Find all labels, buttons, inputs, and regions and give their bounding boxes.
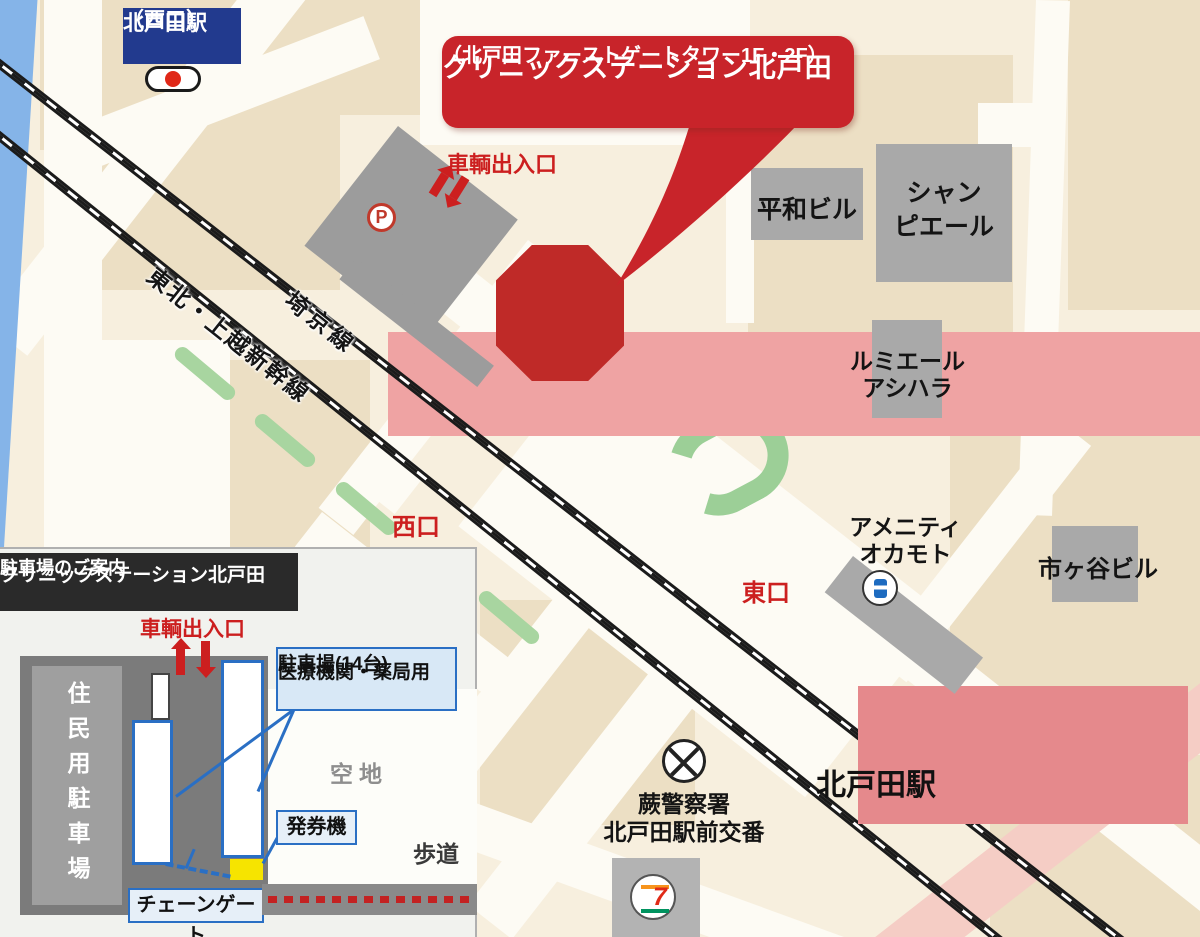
- amenity-label-2: オカモト: [852, 535, 959, 569]
- seven-glyph: 7: [653, 883, 667, 912]
- station-name-label: 北戸田駅: [816, 760, 936, 804]
- area-map: 埼京線 東北・上越新幹線 P 車輌出入口 平和ビル シャン ピエール ルミエール…: [0, 0, 1200, 937]
- ticket-machine-callout: 発券機: [276, 810, 357, 845]
- ichigaya-label: 市ヶ谷ビル: [1038, 549, 1153, 584]
- convenience-store-icon: [862, 570, 898, 606]
- ticket-machine: [230, 859, 263, 880]
- arrow-up-icon: [176, 649, 185, 675]
- city-block: [1068, 0, 1200, 310]
- parking-inset-map: クリニックステーション北戸田 駐車場のご案内 住民用駐車場 車輌出入口 医療機関…: [0, 547, 477, 937]
- sidewalk-strip: [262, 884, 477, 915]
- red-light: [165, 71, 181, 87]
- arrow-down-icon: [201, 641, 210, 667]
- saikyo-line-label: 埼京線: [279, 282, 366, 361]
- parking-icon: P: [367, 203, 396, 232]
- west-exit-label: 西口: [392, 507, 440, 542]
- police-label-2: 北戸田駅前交番: [596, 813, 772, 847]
- parking-column-middle: [132, 720, 173, 865]
- champierre-label-1: シャン: [876, 173, 1012, 209]
- police-box-icon: [662, 739, 706, 783]
- station-west-exit-sign: 北戸田駅 （西口）: [123, 8, 241, 64]
- balloon-tail: [558, 118, 798, 293]
- chain-gate-callout: チェーンゲート: [128, 888, 264, 923]
- traffic-light-icon: [145, 66, 201, 92]
- parking-column-small: [151, 673, 170, 720]
- lumiere-label-2: アシハラ: [854, 369, 961, 403]
- resident-parking-building: 住民用駐車場: [32, 666, 122, 905]
- green-stripe: [641, 909, 669, 913]
- clinic-subtitle: （北戸田ファーストゲートタワー1F・2F）: [442, 39, 828, 68]
- red-dotted-line: [268, 896, 473, 903]
- inset-header-line-2: 駐車場のご案内: [0, 554, 126, 580]
- sign-line-2: （西口）: [123, 8, 207, 34]
- seven-eleven-icon: 7: [630, 874, 676, 920]
- medical-parking-callout: 医療機関・薬局用 駐車場(14台): [276, 647, 457, 711]
- vacant-lot-label: 空地: [330, 755, 388, 789]
- east-exit-label: 東口: [742, 573, 790, 608]
- medical-parking-line-2: 駐車場(14台): [278, 649, 388, 676]
- inset-header: クリニックステーション北戸田 駐車場のご案内: [0, 553, 298, 611]
- champierre-label-2: ピエール: [876, 207, 1012, 243]
- clinic-title-balloon: クリニックステーション北戸田 （北戸田ファーストゲートタワー1F・2F）: [442, 36, 854, 128]
- store-glyph: [874, 579, 887, 598]
- sidewalk-label: 歩道: [413, 835, 459, 869]
- inset-vehicle-entrance-label: 車輌出入口: [140, 613, 245, 643]
